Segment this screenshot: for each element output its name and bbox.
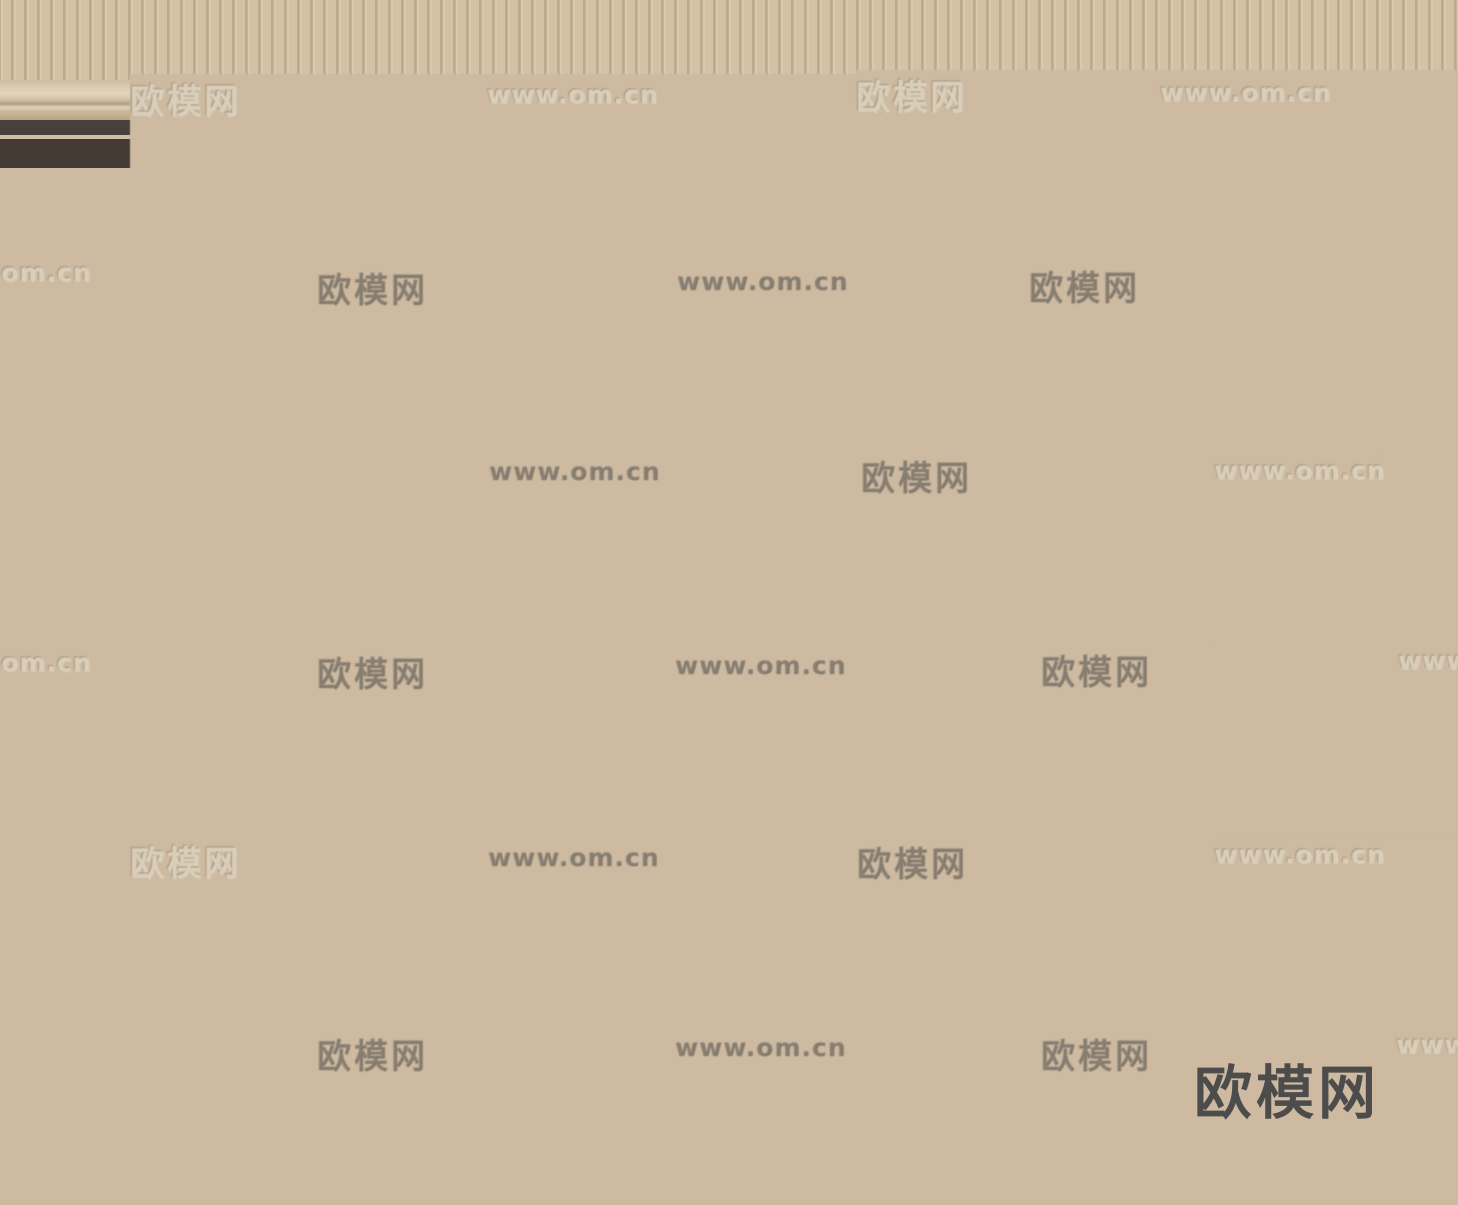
watermark-site-url: www.om.cn: [0, 258, 1378, 1195]
watermark-brand-cn: 欧模网: [860, 450, 971, 499]
watermark-brand-cn: 欧模网: [316, 1028, 427, 1077]
site-logo: 欧模网: [1194, 1046, 1380, 1130]
watermark-site-url: www.om.cn: [1160, 78, 1458, 1015]
watermark-site-url: www.: [1396, 1030, 1458, 1205]
watermark-brand-cn: 欧模网: [130, 836, 1458, 1205]
watermark-site-url: www.om.cn: [487, 80, 1458, 1017]
watermark-site-url: www.om.cn: [1214, 840, 1458, 1205]
watermark-site-url: www.: [1398, 646, 1458, 1205]
watermark-site-url: www.om.cn: [674, 650, 846, 679]
watermark-layer: 欧模网www.om.cn欧模网www.om.cnwww.om.cn欧模网www.…: [0, 0, 1458, 1205]
watermark-brand-cn: 欧模网: [1028, 260, 1139, 309]
watermark-brand-cn: 欧模网: [316, 646, 427, 695]
watermark-brand-cn: 欧模网: [316, 262, 427, 311]
watermark-site-url: www.om.cn: [488, 456, 660, 485]
watermark-site-url: www.om.cn: [674, 1032, 846, 1061]
watermark-site-url: www.om.cn: [487, 842, 659, 871]
watermark-brand-cn: 欧模网: [1040, 1028, 1151, 1077]
watermark-site-url: www.om.cn: [0, 648, 1378, 1205]
watermark-brand-cn: 欧模网: [856, 70, 1458, 1007]
watermark-brand-cn: 欧模网: [856, 836, 967, 885]
watermark-brand-cn: 欧模网: [1040, 644, 1151, 693]
watermark-site-url: www.om.cn: [676, 266, 848, 295]
scene: INNENARCHITEKTURART FOR SURVIVALART FOR …: [0, 0, 1458, 1205]
watermark-brand-cn: 欧模网: [130, 74, 1458, 1011]
